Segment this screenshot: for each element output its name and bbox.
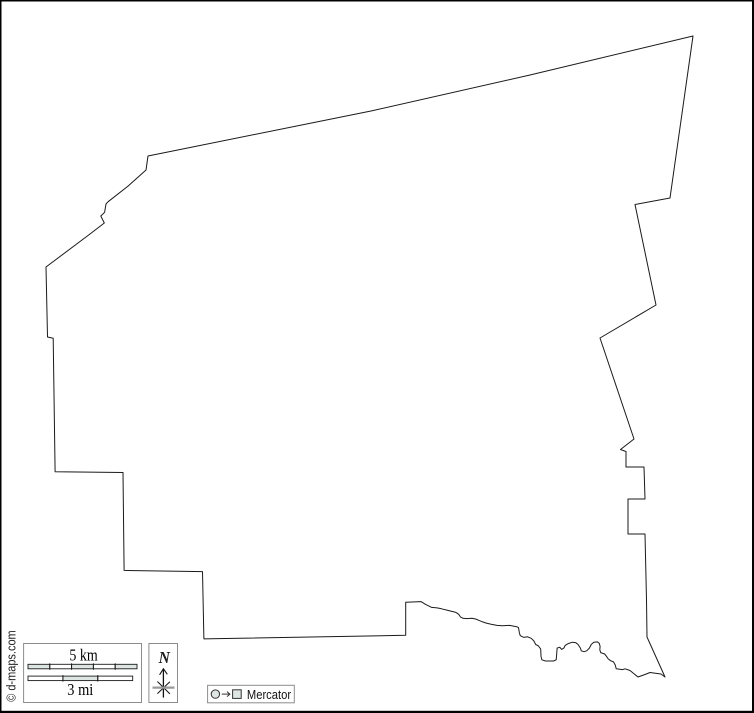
svg-text:Mercator: Mercator [247,687,292,702]
svg-text:3 mi: 3 mi [67,680,93,699]
svg-text:N: N [158,648,171,667]
svg-text:© d-maps.com: © d-maps.com [4,630,19,702]
svg-text:5 km: 5 km [69,646,97,665]
